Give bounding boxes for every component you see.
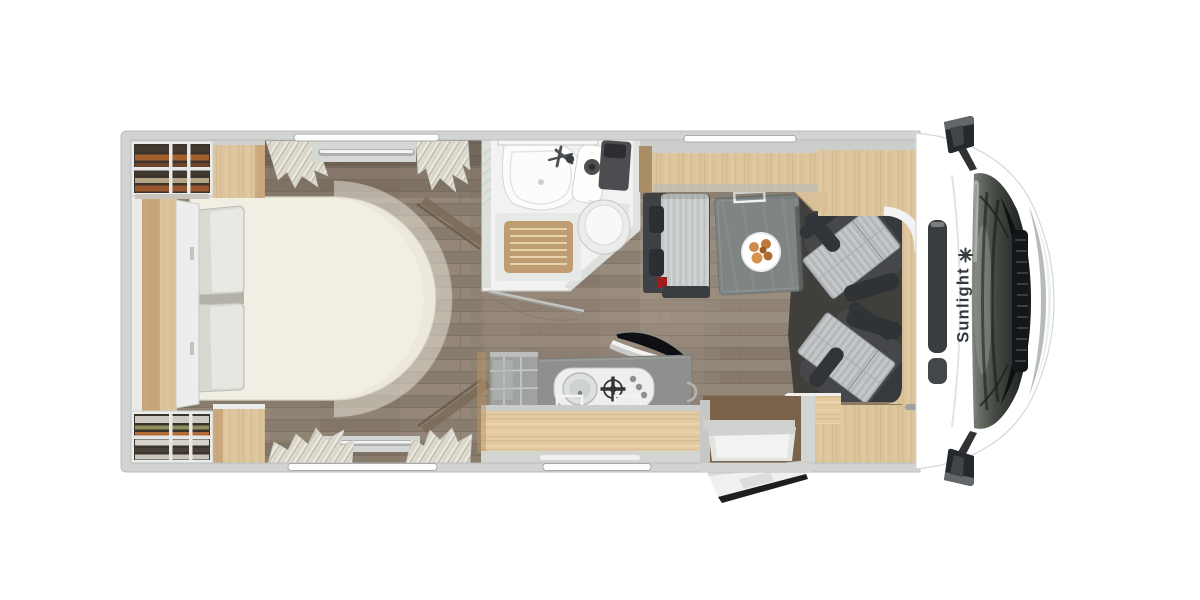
- svg-text:Sunlight: Sunlight: [955, 267, 973, 343]
